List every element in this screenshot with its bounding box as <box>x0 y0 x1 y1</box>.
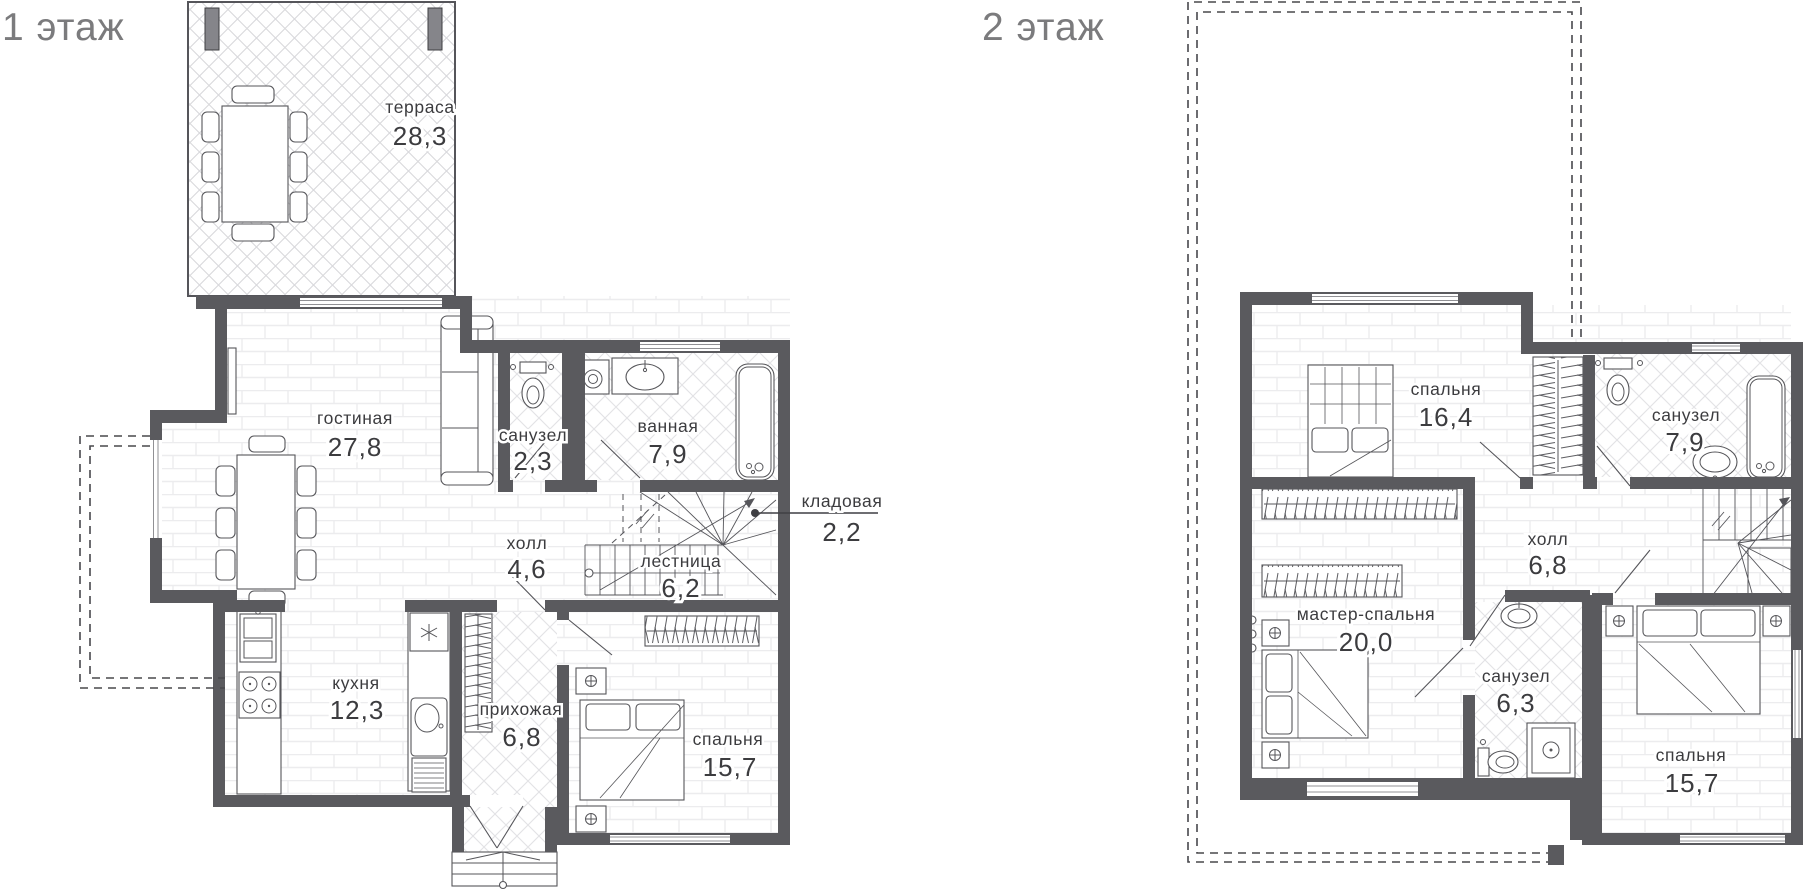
master-wardrobe-top <box>1262 489 1457 519</box>
room-name-storage: кладовая <box>802 491 883 511</box>
nightstand <box>1763 606 1790 636</box>
room-area-hall2: 6,8 <box>1528 550 1567 580</box>
room-area-bath1: 7,9 <box>648 439 687 469</box>
floor1-plan: 1 этаж терраса 28,3 гостиная 27,8 санузе… <box>2 2 882 889</box>
bedroom-bed <box>580 700 684 800</box>
shower <box>1527 723 1575 778</box>
room-name-bath1: ванная <box>638 416 699 436</box>
tv <box>228 348 236 414</box>
bedroom2-bed <box>1637 606 1760 714</box>
kitchen-counter <box>237 610 281 794</box>
room-name-wc2: санузел <box>1482 666 1550 686</box>
room-area-entry: 6,8 <box>502 722 541 752</box>
floorplan-page: 1 этаж терраса 28,3 гостиная 27,8 санузе… <box>0 0 1812 891</box>
room-area-terrace: 28,3 <box>393 121 448 151</box>
floor2-plan: 2 этаж спальня 16,4 санузел 7,9 холл 6,8… <box>982 2 1803 865</box>
room-name-stairs: лестница <box>641 551 722 571</box>
kitchen-sink <box>411 698 447 756</box>
terrace-pillar <box>428 8 442 50</box>
floor1-title: 1 этаж <box>2 6 125 49</box>
nightstand <box>576 668 606 694</box>
entrance-porch <box>452 852 557 889</box>
room-name-master: мастер-спальня <box>1297 604 1435 624</box>
bathtub2 <box>1747 376 1785 480</box>
room-area-bedroom21: 16,4 <box>1419 402 1474 432</box>
bathtub <box>736 364 774 480</box>
terrace-pillar <box>205 8 219 50</box>
room-area-stairs: 6,2 <box>661 573 700 603</box>
room-area-master: 20,0 <box>1339 627 1394 657</box>
room-area-storage: 2,2 <box>822 517 861 547</box>
nightstand <box>1606 606 1633 636</box>
room-name-hall1: холл <box>507 533 548 553</box>
floorplan-canvas: 1 этаж терраса 28,3 гостиная 27,8 санузе… <box>0 0 1812 891</box>
room-name-entry: прихожая <box>480 699 563 719</box>
room-name-bath2: санузел <box>1652 405 1720 425</box>
kitchen-column <box>408 611 450 792</box>
b sink-console <box>612 358 678 394</box>
room-area-bath2: 7,9 <box>1665 427 1704 457</box>
nightstand <box>1262 620 1289 646</box>
room-name-wc1: санузел <box>499 425 567 445</box>
room-name-bedroom1f: спальня <box>693 729 764 749</box>
room-name-terrace: терраса <box>385 97 454 117</box>
master-wardrobe-mid <box>1262 565 1402 597</box>
room-area-living: 27,8 <box>328 432 383 462</box>
room-name-bedroom22: спальня <box>1656 745 1727 765</box>
floor2-title: 2 этаж <box>982 6 1105 49</box>
nightstand <box>1262 742 1289 768</box>
wardrobe-column <box>1533 357 1583 475</box>
room-name-kitchen: кухня <box>332 673 380 693</box>
room-name-hall2: холл <box>1528 529 1569 549</box>
bedroom-wardrobe <box>645 616 759 646</box>
nightstand <box>576 806 606 832</box>
room-name-living: гостиная <box>317 408 393 428</box>
room-area-wc2: 6,3 <box>1496 688 1535 718</box>
master-bed <box>1262 650 1368 738</box>
bedroom1-bed <box>1308 365 1393 477</box>
room-area-kitchen: 12,3 <box>330 695 385 725</box>
room-area-wc1: 2,3 <box>513 446 552 476</box>
room-area-bedroom1f: 15,7 <box>703 752 758 782</box>
room-name-bedroom21: спальня <box>1411 379 1482 399</box>
room-area-hall1: 4,6 <box>507 554 546 584</box>
room-area-bedroom22: 15,7 <box>1665 768 1720 798</box>
